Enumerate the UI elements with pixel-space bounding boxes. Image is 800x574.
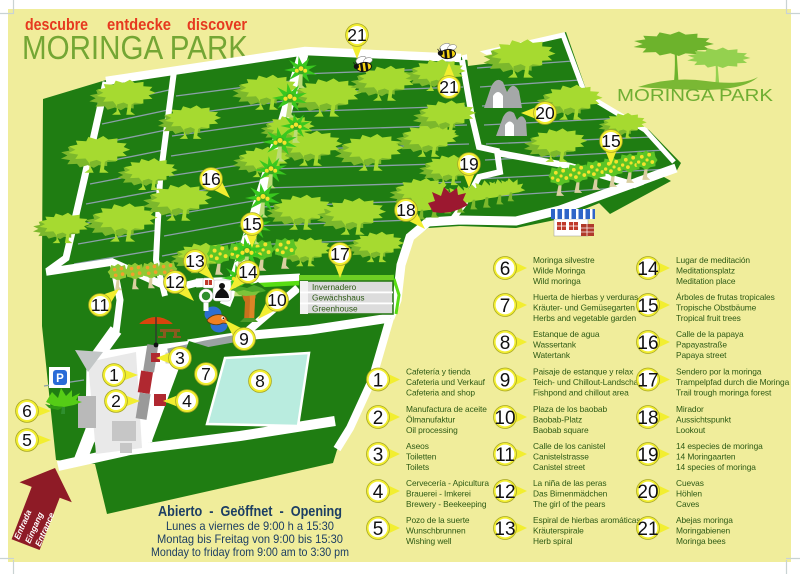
svg-text:14: 14 <box>637 259 659 280</box>
svg-text:Aussichtspunkt: Aussichtspunkt <box>676 415 732 425</box>
svg-text:9: 9 <box>500 370 511 391</box>
svg-text:Wunschbrunnen: Wunschbrunnen <box>406 526 466 536</box>
svg-text:Wishing well: Wishing well <box>406 536 452 546</box>
svg-text:12: 12 <box>494 482 515 503</box>
svg-text:La niña de las peras: La niña de las peras <box>533 478 606 488</box>
svg-text:3: 3 <box>175 348 185 368</box>
svg-text:6: 6 <box>500 259 511 280</box>
svg-text:Wild moringa: Wild moringa <box>533 276 581 286</box>
svg-text:18: 18 <box>396 200 415 220</box>
svg-text:Calle de los canistel: Calle de los canistel <box>533 441 606 451</box>
svg-text:Huerta de hierbas y verduras: Huerta de hierbas y verduras <box>533 292 638 302</box>
svg-text:Tropische Obstbäume: Tropische Obstbäume <box>676 303 757 313</box>
svg-text:15: 15 <box>242 214 261 234</box>
svg-text:Gewächshaus: Gewächshaus <box>312 293 365 303</box>
svg-text:MORINGA PARK: MORINGA PARK <box>617 85 773 105</box>
svg-text:Lookout: Lookout <box>676 425 706 435</box>
svg-text:Cuevas: Cuevas <box>676 478 704 488</box>
svg-text:Canistel street: Canistel street <box>533 462 586 472</box>
svg-text:Cafetería y tienda: Cafetería y tienda <box>406 367 471 377</box>
svg-text:1: 1 <box>109 365 119 385</box>
svg-text:Fishpond and chillout area: Fishpond and chillout area <box>533 388 629 398</box>
svg-text:Lugar de meditación: Lugar de meditación <box>676 255 750 265</box>
svg-text:Wassertank: Wassertank <box>533 340 577 350</box>
svg-text:Das Birnenmädchen: Das Birnenmädchen <box>533 489 608 499</box>
svg-text:Meditation place: Meditation place <box>676 276 736 286</box>
svg-text:Plaza de los baobab: Plaza de los baobab <box>533 404 607 414</box>
svg-text:Brauerei - Imkerei: Brauerei - Imkerei <box>406 489 471 499</box>
svg-text:Cervecería - Apicultura: Cervecería - Apicultura <box>406 478 489 488</box>
svg-text:Moringabienen: Moringabienen <box>676 526 731 536</box>
svg-text:Moringa bees: Moringa bees <box>676 536 726 546</box>
svg-text:14 species of moringa: 14 species of moringa <box>676 462 756 472</box>
svg-text:14: 14 <box>238 262 258 282</box>
svg-text:17: 17 <box>330 244 349 264</box>
svg-text:Wilde Moringa: Wilde Moringa <box>533 266 586 276</box>
svg-text:11: 11 <box>91 295 109 315</box>
svg-text:Paisaje de estanque y relax: Paisaje de estanque y relax <box>533 367 634 377</box>
svg-text:5: 5 <box>373 519 384 540</box>
svg-text:21: 21 <box>637 519 658 540</box>
svg-text:Estanque de agua: Estanque de agua <box>533 329 600 339</box>
svg-text:14 Moringaarten: 14 Moringaarten <box>676 452 736 462</box>
svg-text:Teich- und Chillout-Landschaft: Teich- und Chillout-Landschaft <box>533 377 643 387</box>
svg-text:Aseos: Aseos <box>406 441 429 451</box>
svg-text:Lunes a viernes de 9:00 h a 15: Lunes a viernes de 9:00 h a 15:30 <box>166 519 334 533</box>
svg-text:The girl of the pears: The girl of the pears <box>533 499 605 509</box>
svg-text:21: 21 <box>439 77 458 97</box>
svg-text:Herb spiral: Herb spiral <box>533 536 573 546</box>
svg-text:Abejas moringa: Abejas moringa <box>676 515 733 525</box>
svg-text:Caves: Caves <box>676 499 699 509</box>
svg-text:Meditationsplatz: Meditationsplatz <box>676 266 735 276</box>
svg-text:3: 3 <box>373 445 384 466</box>
svg-text:Toiletten: Toiletten <box>406 452 437 462</box>
svg-text:Baobab square: Baobab square <box>533 425 589 435</box>
svg-text:Oil processing: Oil processing <box>406 425 458 435</box>
svg-text:Árboles de frutas tropicales: Árboles de frutas tropicales <box>676 292 775 302</box>
svg-text:4: 4 <box>182 391 192 411</box>
svg-text:Trampelpfad durch die Moringa: Trampelpfad durch die Moringa <box>676 377 790 387</box>
svg-text:Baobab-Platz: Baobab-Platz <box>533 415 582 425</box>
svg-text:Kräuterspirale: Kräuterspirale <box>533 526 584 536</box>
svg-text:Tropical fruit trees: Tropical fruit trees <box>676 313 741 323</box>
svg-text:19: 19 <box>459 154 478 174</box>
svg-text:15: 15 <box>637 296 658 317</box>
svg-text:12: 12 <box>165 272 184 292</box>
svg-text:21: 21 <box>347 25 366 45</box>
svg-text:Toilets: Toilets <box>406 462 429 472</box>
svg-text:5: 5 <box>22 430 32 450</box>
svg-text:11: 11 <box>495 445 515 466</box>
svg-text:Pozo de la suerte: Pozo de la suerte <box>406 515 470 525</box>
svg-text:Höhlen: Höhlen <box>676 489 702 499</box>
svg-text:17: 17 <box>637 370 658 391</box>
svg-text:9: 9 <box>239 329 249 349</box>
svg-text:Moringa silvestre: Moringa silvestre <box>533 255 595 265</box>
svg-text:18: 18 <box>637 408 658 429</box>
svg-text:Espiral de hierbas aromáticas: Espiral de hierbas aromáticas <box>533 515 640 525</box>
svg-text:Mirador: Mirador <box>676 404 704 414</box>
svg-text:Kräuter- und Gemüsegarten: Kräuter- und Gemüsegarten <box>533 303 635 313</box>
svg-text:2: 2 <box>111 391 121 411</box>
svg-text:Papayastraße: Papayastraße <box>676 340 727 350</box>
svg-text:Cafeteria and shop: Cafeteria and shop <box>406 388 475 398</box>
svg-text:10: 10 <box>267 290 287 310</box>
svg-text:Herbs and vegetable garden: Herbs and vegetable garden <box>533 313 637 323</box>
svg-text:Trail trough moringa forest: Trail trough moringa forest <box>676 388 772 398</box>
svg-text:Brewery - Beekeeping: Brewery - Beekeeping <box>406 499 487 509</box>
svg-text:Watertank: Watertank <box>533 350 571 360</box>
svg-text:Calle de la papaya: Calle de la papaya <box>676 329 744 339</box>
svg-text:14 especies de moringa: 14 especies de moringa <box>676 441 763 451</box>
svg-text:Papaya street: Papaya street <box>676 350 727 360</box>
svg-text:16: 16 <box>201 169 220 189</box>
svg-text:Manufactura de aceite: Manufactura de aceite <box>406 404 487 414</box>
svg-text:Ölmanufaktur: Ölmanufaktur <box>406 415 455 425</box>
svg-text:Montag bis Freitag von 9:00 bi: Montag bis Freitag von 9:00 bis 15:30 <box>157 532 343 546</box>
svg-text:4: 4 <box>373 482 384 503</box>
svg-text:Cafeteria und Verkauf: Cafeteria und Verkauf <box>406 377 486 387</box>
svg-text:20: 20 <box>637 482 658 503</box>
svg-text:1: 1 <box>373 370 384 391</box>
svg-text:16: 16 <box>637 333 658 354</box>
svg-text:Sendero por la moringa: Sendero por la moringa <box>676 367 762 377</box>
svg-text:Invernadero: Invernadero <box>312 282 357 292</box>
svg-text:Monday to friday from 9:00 am: Monday to friday from 9:00 am to 3:30 pm <box>151 545 349 559</box>
svg-text:8: 8 <box>500 333 511 354</box>
svg-text:7: 7 <box>500 296 511 317</box>
svg-text:2: 2 <box>373 408 384 429</box>
svg-text:8: 8 <box>255 371 265 391</box>
svg-text:P: P <box>56 373 64 385</box>
svg-text:Abierto - Geöffnet - Openi: Abierto - Geöffnet - Opening <box>158 503 342 520</box>
svg-text:10: 10 <box>494 408 515 429</box>
svg-text:Greenhouse: Greenhouse <box>312 304 358 314</box>
svg-text:Canistelstrasse: Canistelstrasse <box>533 452 589 462</box>
svg-text:6: 6 <box>22 401 32 421</box>
svg-text:13: 13 <box>185 251 204 271</box>
svg-text:7: 7 <box>201 364 211 384</box>
svg-text:13: 13 <box>494 519 515 540</box>
svg-text:20: 20 <box>535 103 555 123</box>
svg-text:15: 15 <box>601 131 620 151</box>
svg-text:19: 19 <box>637 445 658 466</box>
